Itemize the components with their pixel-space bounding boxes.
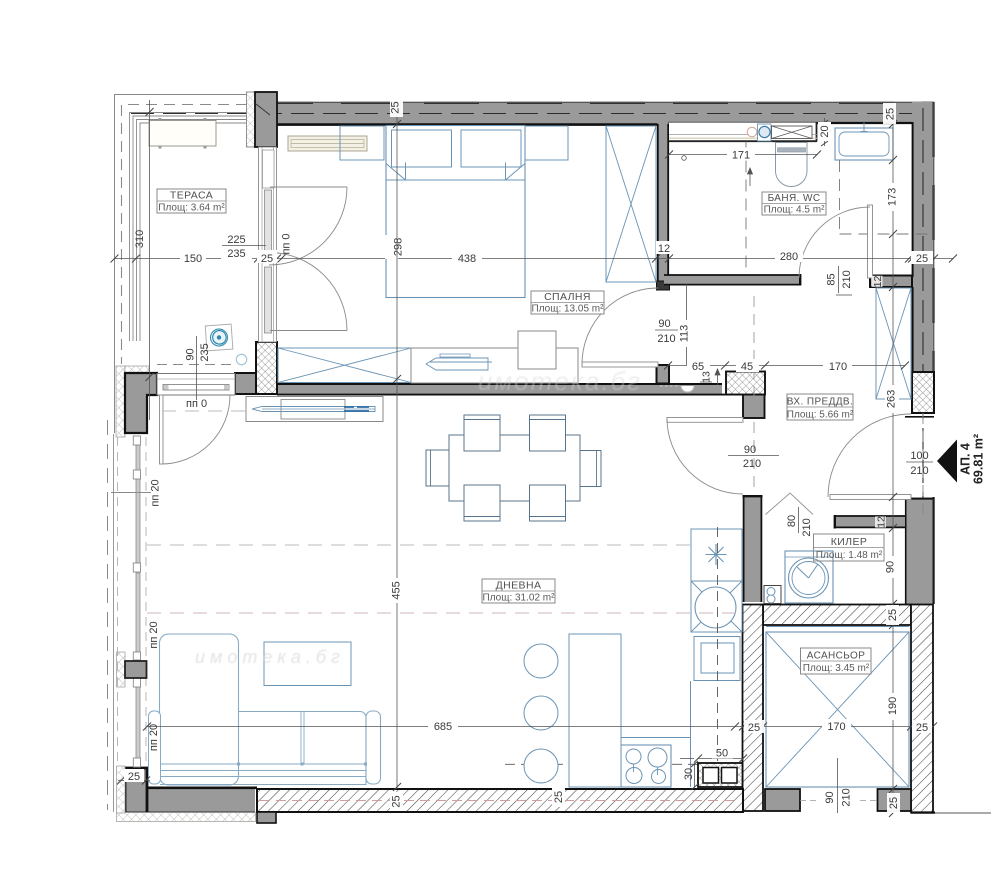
svg-text:25: 25 [748,722,760,734]
svg-text:12: 12 [872,276,884,288]
svg-text:25: 25 [916,253,928,265]
svg-text:12: 12 [658,243,670,255]
svg-text:235: 235 [227,248,245,260]
svg-text:45: 45 [741,361,753,373]
svg-text:263: 263 [886,390,898,408]
svg-text:310: 310 [134,230,146,248]
svg-text:173: 173 [887,188,899,206]
svg-text:438: 438 [458,253,476,265]
svg-text:210: 210 [743,458,761,470]
svg-text:90: 90 [658,318,670,330]
svg-text:25: 25 [553,791,565,803]
svg-text:25: 25 [128,771,140,783]
svg-text:20: 20 [819,125,831,137]
svg-text:298: 298 [392,238,404,256]
svg-text:25: 25 [887,609,899,621]
svg-text:пп 0: пп 0 [281,233,293,254]
svg-text:685: 685 [434,721,452,733]
svg-text:АСАНСЬОР: АСАНСЬОР [807,651,866,662]
svg-text:30: 30 [683,768,695,780]
svg-text:170: 170 [829,361,847,373]
svg-text:АП. 4: АП. 4 [959,443,973,475]
svg-text:210: 210 [841,270,853,288]
svg-text:210: 210 [841,788,853,806]
svg-text:пп 20: пп 20 [148,724,160,751]
svg-text:Площ: 31.02 m²: Площ: 31.02 m² [483,593,556,604]
svg-text:имотека.бг: имотека.бг [478,366,642,396]
svg-text:25: 25 [261,253,273,265]
svg-text:50: 50 [716,748,728,760]
svg-text:170: 170 [827,721,845,733]
svg-text:90: 90 [824,791,836,803]
svg-text:100: 100 [910,450,928,462]
svg-text:80: 80 [786,515,798,527]
svg-text:Площ: 3.45 m²: Площ: 3.45 m² [803,663,870,674]
svg-text:190: 190 [887,697,899,715]
svg-text:КИЛЕР: КИЛЕР [831,536,868,548]
svg-text:25: 25 [888,797,900,809]
svg-text:пп 20: пп 20 [148,621,160,648]
svg-text:25: 25 [391,795,403,807]
svg-text:Площ: 13.05 m²: Площ: 13.05 m² [532,304,605,315]
svg-text:280: 280 [780,251,798,263]
svg-text:13: 13 [701,371,713,383]
svg-text:210: 210 [910,465,928,477]
svg-text:Площ: 1.48 m²: Площ: 1.48 m² [816,550,883,561]
svg-text:69.81 m²: 69.81 m² [972,434,986,484]
svg-text:113: 113 [679,325,691,343]
svg-text:ТЕРАСА: ТЕРАСА [170,190,213,202]
svg-text:150: 150 [184,253,202,265]
svg-text:Площ: 4.5 m²: Площ: 4.5 m² [764,205,825,216]
svg-text:90: 90 [744,444,756,456]
svg-text:Площ: 5.66 m²: Площ: 5.66 m² [787,410,854,421]
svg-text:пп 0: пп 0 [186,398,207,410]
svg-text:171: 171 [732,150,750,162]
svg-text:90: 90 [885,561,897,573]
svg-text:210: 210 [657,333,675,345]
svg-text:12: 12 [876,516,888,528]
svg-text:235: 235 [199,343,211,361]
svg-text:имотека.бг: имотека.бг [195,647,345,667]
svg-text:25: 25 [916,722,928,734]
svg-text:ВХ. ПРЕДДВ.: ВХ. ПРЕДДВ. [787,397,853,408]
svg-text:90: 90 [185,348,197,360]
svg-text:Площ: 3.64 m²: Площ: 3.64 m² [158,203,225,214]
svg-text:25: 25 [390,101,402,113]
svg-text:225: 225 [227,234,245,246]
svg-text:455: 455 [391,581,403,599]
svg-text:210: 210 [801,518,813,536]
svg-text:25: 25 [885,108,897,120]
svg-text:БАНЯ. WC: БАНЯ. WC [768,193,821,204]
svg-text:пп 20: пп 20 [150,479,162,506]
svg-text:ДНЕВНА: ДНЕВНА [496,580,542,592]
svg-text:85: 85 [826,273,838,285]
svg-text:СПАЛНЯ: СПАЛНЯ [544,291,591,303]
